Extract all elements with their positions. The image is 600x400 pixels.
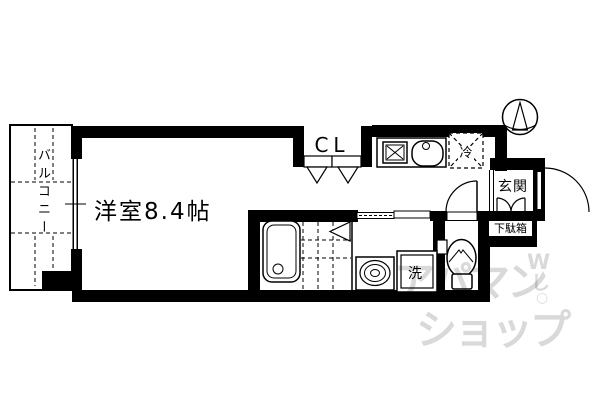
toilet-icon	[447, 240, 476, 290]
sink-icon	[412, 141, 443, 166]
room-label: 洋室8.4帖	[94, 192, 212, 226]
kitchen-counter	[377, 138, 446, 167]
front-door-arc	[545, 168, 589, 212]
balcony-step	[42, 271, 72, 290]
north-arrow-icon	[503, 100, 538, 135]
floor-plan-image: 洋室8.4帖 バルコニー CL 冷 玄関 下駄箱 洗 アパマン W し ○ ショ…	[0, 0, 600, 400]
stove-icon	[383, 142, 407, 163]
balcony-label: バルコニー	[33, 148, 52, 273]
washbasin-icon	[356, 257, 394, 290]
bathtub-icon	[263, 221, 300, 282]
paper-holder	[437, 240, 447, 254]
bifold-door-icon	[307, 167, 327, 183]
refrigerator-label: 冷	[449, 142, 483, 161]
toilet-door-opening	[447, 212, 477, 221]
entrance-label: 玄関	[492, 176, 534, 196]
bifold-door-icon	[338, 167, 358, 183]
sliding-door	[357, 211, 430, 219]
washing-machine-label: 洗	[400, 263, 430, 283]
shoe-cabinet-doors	[497, 198, 525, 212]
closet-label: CL	[302, 133, 362, 157]
floor-plan-svg	[0, 0, 600, 400]
shoe-cabinet-label: 下駄箱	[487, 219, 534, 238]
bathroom	[263, 220, 352, 290]
toilet-door-arc	[446, 181, 477, 212]
